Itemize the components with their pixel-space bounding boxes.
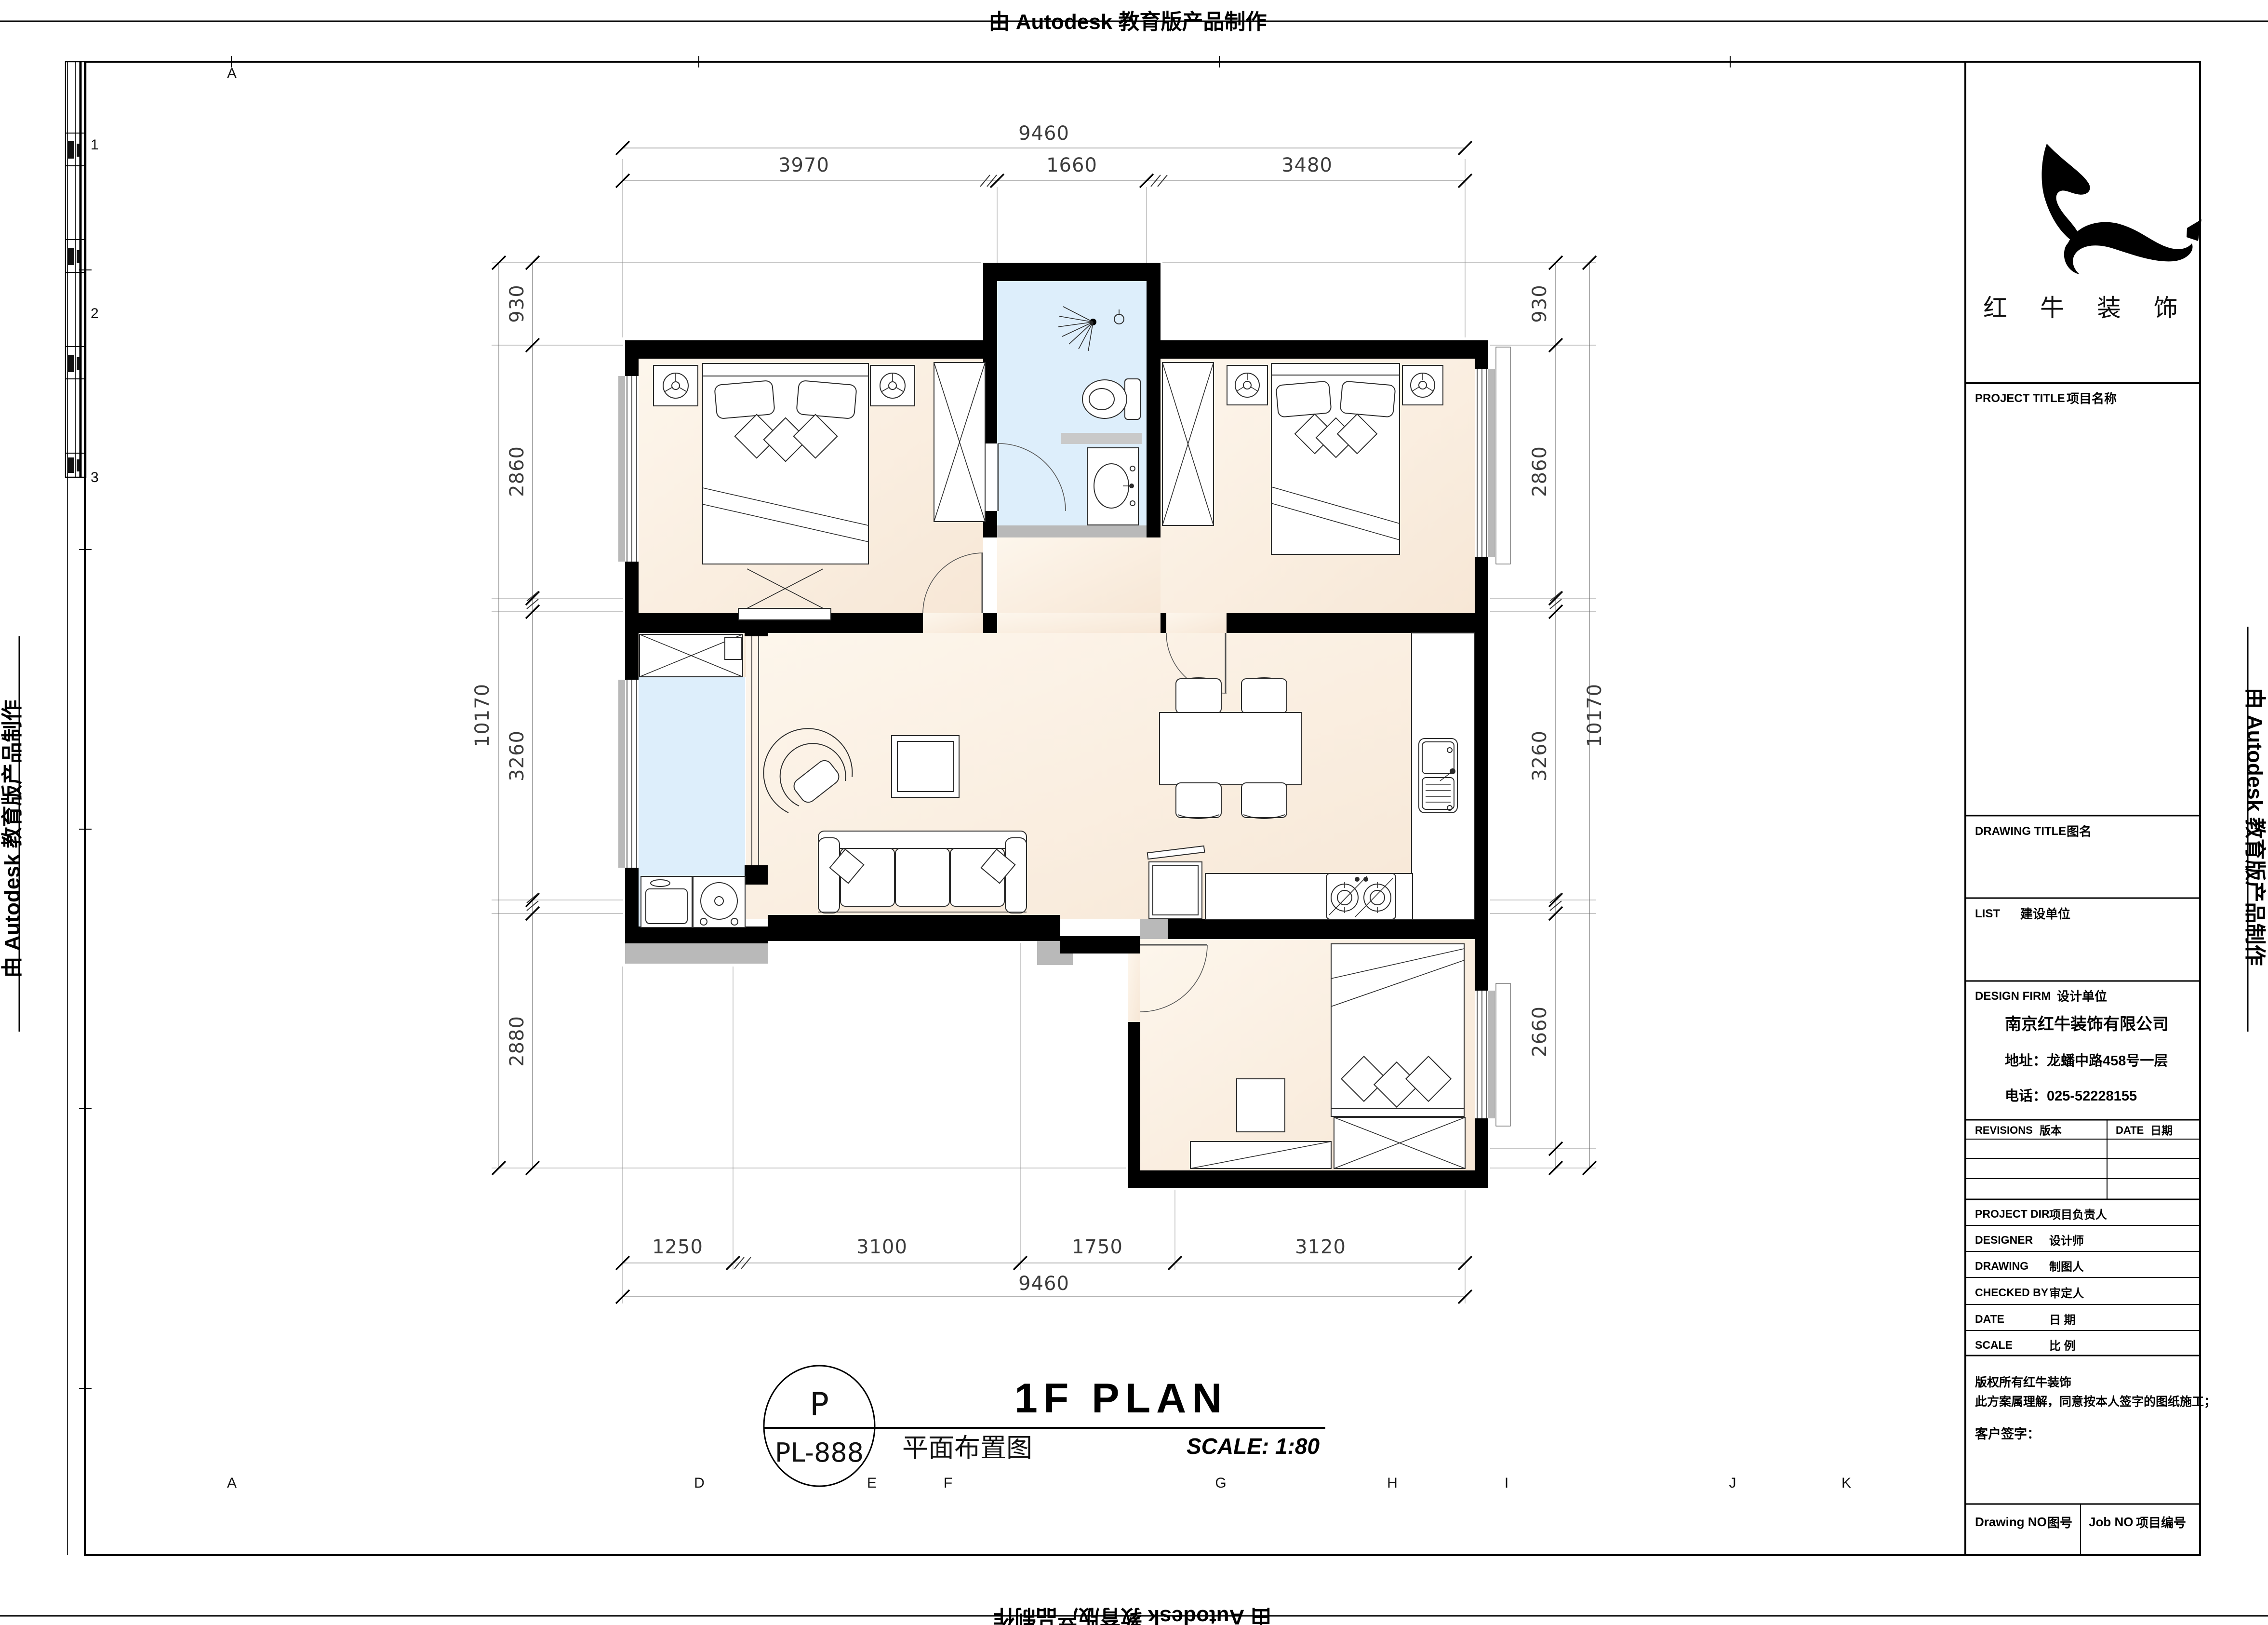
row-label-zh: 审定人 [2049, 1287, 2084, 1300]
shoe-cabinet [1190, 1142, 1331, 1168]
footer-job-no-en: Job NO [2089, 1515, 2133, 1529]
row-label-en: DATE [1975, 1313, 2004, 1325]
nightstand-with-lamp [1227, 365, 1267, 405]
field-design-firm-en: DESIGN FIRM [1975, 990, 2051, 1003]
logo-horn-icon [2041, 144, 2090, 242]
bedroom3-window [1475, 983, 1510, 1126]
nightstand-with-lamp [654, 365, 698, 406]
dim-bottom-seg: 1750 [1072, 1236, 1123, 1258]
caption-title: 1F PLAN [1014, 1375, 1227, 1422]
nightstand-with-lamp [870, 365, 915, 406]
sofa [818, 831, 1027, 913]
grid-letter: K [1841, 1475, 1851, 1491]
laundry-counter [641, 876, 745, 927]
company-name: 南京红牛装饰有限公司 [2005, 1015, 2169, 1034]
caption-subtitle: 平面布置图 [902, 1433, 1032, 1463]
grid-letter: F [944, 1475, 952, 1491]
copyright-note-line1: 版权所有红牛装饰 [1974, 1375, 2071, 1389]
tv-cabinet [640, 634, 743, 677]
dim-top-seg: 3480 [1281, 154, 1333, 176]
dim-right-seg: 930 [1529, 284, 1551, 322]
dim-top-seg: 3970 [778, 154, 829, 176]
desk [1237, 1079, 1285, 1132]
stove-icon [1326, 873, 1396, 919]
dim-right-seg: 3260 [1529, 730, 1551, 781]
dim-bottom-seg: 1250 [652, 1236, 703, 1258]
field-project-title-en: PROJECT TITLE [1975, 392, 2065, 405]
title-block: 红 牛 装 饰 PROJECT TITLE 项目名称 DRAWING TITLE… [1965, 144, 2216, 1555]
coffee-table [892, 736, 959, 797]
dim-bottom-seg: 3120 [1295, 1236, 1346, 1258]
floor-plan [618, 263, 1510, 1188]
dim-right-seg: 2660 [1529, 1006, 1551, 1057]
dim-right-seg: 2860 [1529, 446, 1551, 497]
brand-name: 红 牛 装 饰 [1983, 294, 2190, 322]
field-drawing-title-en: DRAWING TITLE [1975, 825, 2066, 838]
watermark-right: 由 Autodesk 教育版产品制作 [2243, 688, 2267, 966]
field-design-firm-zh: 设计单位 [2057, 989, 2107, 1004]
grid-number: 1 [91, 137, 99, 153]
row-label-zh: 比 例 [2049, 1340, 2076, 1353]
grid-number: 2 [91, 306, 99, 322]
revisions-col-zh: 版本 [2040, 1124, 2062, 1137]
date-col-zh: 日期 [2150, 1124, 2173, 1137]
field-list-zh: 建设单位 [2020, 907, 2070, 921]
row-label-en: DESIGNER [1975, 1234, 2033, 1246]
dim-bottom-seg: 3100 [856, 1236, 907, 1258]
dim-bottom-overall: 9460 [1018, 1273, 1069, 1295]
copyright-note-line2: 此方案属理解，同意按本人签字的图纸施工； [1975, 1395, 2216, 1409]
plan-caption: P PL-888 1F PLAN 平面布置图 SCALE: 1:80 [764, 1366, 1325, 1486]
caption-bubble-code: PL-888 [775, 1437, 864, 1468]
dim-top-seg: 1660 [1046, 154, 1097, 176]
fold-marks-table: 1 2 3 [66, 62, 99, 485]
field-list-en: LIST [1975, 907, 2000, 920]
dim-left-seg: 2880 [506, 1016, 528, 1067]
wardrobe3 [1334, 1117, 1465, 1168]
grid-letters-bottom: A D E F G H I J K [227, 1475, 1851, 1491]
row-label-en: SCALE [1975, 1339, 2013, 1351]
row-label-en: CHECKED BY [1975, 1286, 2048, 1299]
bed3 [1331, 944, 1464, 1116]
grid-letter: I [1505, 1475, 1508, 1491]
client-signature-label: 客户签字： [1975, 1426, 2040, 1441]
dim-left-seg: 930 [506, 284, 528, 322]
floor-plan-sheet-svg: 由 Autodesk 教育版产品制作 由 Autodesk 教育版产品制作 由 … [0, 0, 2268, 1625]
row-label-en: PROJECT DIR [1975, 1208, 2050, 1220]
grid-letter: D [694, 1475, 705, 1491]
footer-drawing-no-zh: 图号 [2047, 1516, 2072, 1530]
row-label-en: DRAWING [1975, 1260, 2028, 1272]
dim-left-seg: 2860 [506, 446, 528, 497]
toilet-icon [1082, 379, 1140, 419]
dim-left-overall: 10170 [471, 684, 494, 747]
company-logo [2041, 144, 2201, 274]
bedroom2-window [1475, 347, 1510, 564]
grid-letter: A [227, 1475, 237, 1491]
watermark-top: 由 Autodesk 教育版产品制作 [989, 10, 1267, 34]
grid-letter: J [1729, 1475, 1736, 1491]
row-label-zh: 设计师 [2049, 1235, 2084, 1248]
row-label-zh: 日 期 [2049, 1314, 2076, 1327]
row-label-zh: 项目负责人 [2049, 1209, 2107, 1222]
bedroom1-window [618, 376, 639, 562]
kitchen-sink-icon [1419, 739, 1457, 813]
grid-letter-top: A [227, 66, 237, 81]
nightstand-with-lamp [1402, 365, 1443, 405]
grid-letter: H [1387, 1475, 1398, 1491]
balcony-window [618, 680, 639, 868]
footer-job-no-zh: 项目编号 [2136, 1516, 2186, 1530]
watermark-left: 由 Autodesk 教育版产品制作 [0, 700, 24, 978]
dim-right-overall: 10170 [1584, 684, 1606, 747]
dim-left-seg: 3260 [506, 730, 528, 781]
caption-bubble-letter: P [810, 1386, 829, 1423]
date-col-en: DATE [2116, 1124, 2144, 1136]
caption-scale: SCALE: 1:80 [1187, 1434, 1320, 1459]
company-phone: 电话：025-52228155 [2005, 1088, 2137, 1104]
dim-top-overall: 9460 [1018, 122, 1069, 145]
footer-drawing-no-en: Drawing NO [1975, 1515, 2047, 1529]
row-label-zh: 制图人 [2049, 1261, 2084, 1274]
field-drawing-title-zh: 图名 [2067, 824, 2092, 839]
revisions-col-en: REVISIONS [1975, 1124, 2033, 1136]
grid-number: 3 [91, 470, 99, 485]
watermark-bottom: 由 Autodesk 教育版产品制作 [994, 1605, 1272, 1625]
company-address: 地址：龙蟠中路458号一层 [2005, 1053, 2168, 1069]
grid-letter: E [867, 1475, 877, 1491]
field-project-title-zh: 项目名称 [2067, 391, 2117, 406]
logo-swoosh-icon [2064, 222, 2193, 274]
cad-drawing-sheet: 由 Autodesk 教育版产品制作 由 Autodesk 教育版产品制作 由 … [0, 0, 2268, 1625]
grid-letter: G [1215, 1475, 1226, 1491]
vanity-sink-icon [1087, 448, 1138, 525]
